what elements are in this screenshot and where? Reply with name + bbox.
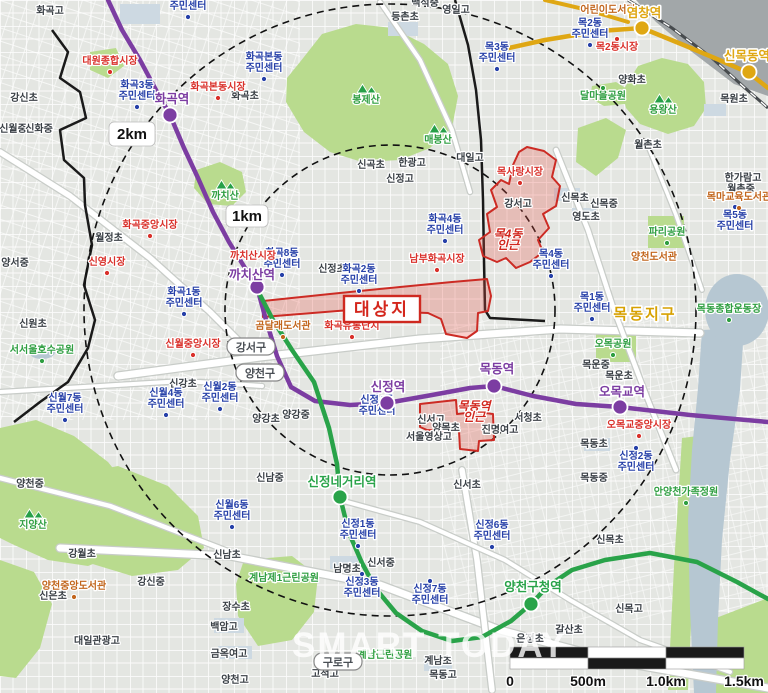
map-svg: 화곡고백석중등촌초영일고강신초신월중신화중화곡초월정초양서중신원초신정초신곡초한… <box>0 0 768 693</box>
poi-dot <box>359 571 364 576</box>
map-label: 진명여고 <box>482 423 519 436</box>
station-label: 신정네거리역 <box>307 474 376 489</box>
map-label: 강서고 <box>504 197 532 210</box>
station-marker <box>524 597 539 612</box>
poi-dot <box>217 406 222 411</box>
map-label: 계남근린공원 <box>357 648 412 661</box>
poi-dot <box>427 578 432 583</box>
poi-dot <box>185 14 190 19</box>
poi-dot <box>280 334 285 339</box>
poi-dot <box>589 316 594 321</box>
poi-dot <box>489 544 494 549</box>
map-label: 신목중 <box>590 197 618 210</box>
scale-bar-label: 1.0km <box>646 673 686 689</box>
map-label: 금옥여고 <box>211 647 248 660</box>
map-label: 화곡중앙시장 <box>122 218 178 231</box>
poi-dot <box>134 104 139 109</box>
map-label: 신월2동주민센터 <box>202 380 239 404</box>
poi-dot <box>229 524 234 529</box>
map-label: 신월4동주민센터 <box>148 386 185 410</box>
map-label: 신월중 <box>0 122 27 135</box>
map-label: 양천중 <box>16 477 44 490</box>
map-label: 영도초 <box>572 210 600 223</box>
scale-bar-segment <box>588 658 666 669</box>
poi-dot <box>434 267 439 272</box>
map-label: 양천고 <box>221 673 249 686</box>
map-label: 목운초 <box>605 369 633 382</box>
map-label: 화곡1동주민센터 <box>166 286 203 309</box>
station-marker <box>613 400 628 415</box>
map-label: 신남중 <box>256 471 284 484</box>
map-label: 오목교중앙시장 <box>607 418 672 431</box>
poi-dot <box>163 412 168 417</box>
map-label: 목사랑시장 <box>497 165 544 178</box>
map-label: 강신초 <box>10 91 38 104</box>
poi-dot <box>71 594 76 599</box>
map-label: 강신중 <box>137 575 165 588</box>
scale-bar-segment <box>510 647 588 658</box>
poi-dot <box>62 417 67 422</box>
station-marker <box>742 65 757 80</box>
map-label: 남명초 <box>333 562 361 575</box>
poi-dot <box>279 272 284 277</box>
map-label: 신곡초 <box>357 158 385 171</box>
map-label: 신월6동주민센터 <box>214 498 251 522</box>
station-label: 양천구청역 <box>504 579 562 594</box>
map-label: 신월중앙시장 <box>165 337 221 350</box>
poi-dot <box>261 76 266 81</box>
map-label: 서서울호수공원 <box>10 343 74 356</box>
poi-dot <box>610 352 615 357</box>
map-label: 화곡3동주민센터 <box>119 79 156 102</box>
map-label: 대일고 <box>456 151 484 164</box>
map-label: 화곡고 <box>36 5 64 17</box>
map-label: 양강초 <box>252 412 280 425</box>
map-label: 대원종합시장 <box>82 54 138 67</box>
poi-dot <box>614 36 619 41</box>
scale-bar-segment <box>510 658 588 669</box>
map-label: 신서초 <box>453 478 481 491</box>
district-label: 구로구 <box>323 656 353 669</box>
poi-dot <box>349 334 354 339</box>
poi-dot <box>633 445 638 450</box>
map-label: 신서중 <box>367 556 395 569</box>
map-label: 신월7동주민센터 <box>47 391 84 415</box>
scale-bar-label: 1.5km <box>724 673 764 689</box>
poi-dot <box>548 273 553 278</box>
scale-bar-label: 500m <box>570 673 606 689</box>
map-label: 목원초 <box>720 92 748 105</box>
poi-dot <box>190 352 195 357</box>
map-label: 안양천가족정원 <box>654 485 718 498</box>
station-label: 까치산역 <box>229 267 275 282</box>
map-label: 신목고 <box>615 602 643 615</box>
station-marker <box>333 490 348 505</box>
map-label: 파리공원 <box>649 225 686 238</box>
poi-dot <box>147 233 152 238</box>
poi-dot <box>736 205 741 210</box>
map-label: 양천도서관 <box>631 250 678 263</box>
ring-label-1km: 1km <box>232 208 262 225</box>
poi-dot <box>664 240 669 245</box>
scale-bar-segment <box>588 647 666 658</box>
map-label: 강월초 <box>68 547 96 560</box>
poi-dot <box>587 42 592 47</box>
map-label: 목동중 <box>580 472 608 484</box>
poi-dot <box>442 238 447 243</box>
scale-bar-label: 0 <box>506 673 514 689</box>
map-label: 갈산초 <box>555 623 583 636</box>
map-label: 까치산시장 <box>230 249 277 262</box>
poi-dot <box>683 500 688 505</box>
map-label: 양강중 <box>282 408 310 421</box>
map-label: 서울영상고 <box>406 430 452 443</box>
map-label: 화곡본동시장 <box>190 80 246 93</box>
map-label: 곰달래도서관 <box>255 319 311 332</box>
map-label: 양천중앙도서관 <box>42 579 107 592</box>
map-label: 신남초 <box>213 548 241 561</box>
map-label: 화곡본동주민센터 <box>246 51 283 74</box>
poi-dot <box>215 95 220 100</box>
map-label: 신정1동주민센터 <box>340 517 377 541</box>
poi-dot <box>636 433 641 438</box>
map-label: 목동고 <box>429 669 457 681</box>
map-label: 신정3동주민센터 <box>344 575 381 599</box>
map-label: 장수초 <box>222 600 250 613</box>
station-label: 신정역 <box>371 379 406 394</box>
poi-dot <box>356 288 361 293</box>
map-canvas[interactable]: 화곡고백석중등촌초영일고강신초신월중신화중화곡초월정초양서중신원초신정초신곡초한… <box>0 0 768 693</box>
map-label: 월정초 <box>95 231 123 244</box>
station-label: 염창역 <box>627 5 662 20</box>
map-label: 백암고 <box>210 620 238 633</box>
poi-dot <box>726 317 731 322</box>
map-label: 신목초 <box>561 191 589 204</box>
map-label: 화곡2동주민센터 <box>341 263 378 286</box>
map-label: 서청초 <box>514 411 542 424</box>
poi-dot <box>107 69 112 74</box>
target-site-label: 대상지 <box>354 300 410 319</box>
poi-dot <box>104 270 109 275</box>
poi-dot <box>517 180 522 185</box>
poi-dot <box>494 66 499 71</box>
map-label: 양화초 <box>618 73 646 86</box>
scale-bar-segment <box>666 658 744 669</box>
map-label: 목동종합운동장 <box>697 302 762 315</box>
map-label: 신정고 <box>386 172 414 185</box>
scale-bar-segment <box>666 647 744 658</box>
map-label: 지양산 <box>19 518 47 531</box>
map-label: 신화중 <box>25 122 53 135</box>
map-label: 까치산 <box>211 189 239 202</box>
station-marker <box>635 21 650 36</box>
building-block <box>704 104 726 116</box>
map-label: 남부화곡시장 <box>409 252 465 265</box>
poi-dot <box>181 311 186 316</box>
map-label: 한가람고 <box>725 171 762 184</box>
ring-label-2km: 2km <box>117 126 147 143</box>
district-label: 양천구 <box>245 366 275 380</box>
map-label: 목운중 <box>582 359 610 371</box>
map-label: 신정2동주민센터 <box>618 449 655 473</box>
map-label: 목마교육도서관 <box>707 190 768 203</box>
map-label: 용왕산 <box>649 103 677 116</box>
map-label: 은정초 <box>516 632 544 645</box>
map-label: 백석중 <box>411 0 439 9</box>
map-label: 신원초 <box>19 317 47 330</box>
station-label: 신목동역 <box>724 48 768 63</box>
zone-label: 목4동인근 <box>494 227 524 252</box>
map-label: 신정6동주민센터 <box>474 518 511 542</box>
district-label: 강서구 <box>236 340 266 354</box>
station-marker <box>163 108 178 123</box>
map-label: 오목공원 <box>595 337 632 350</box>
map-label: 주민센터 <box>170 0 207 12</box>
station-marker <box>487 379 502 394</box>
poi-dot <box>355 543 360 548</box>
station-marker <box>380 396 395 411</box>
map-label: 계남초 <box>424 654 452 667</box>
map-label: 화곡4동주민센터 <box>427 213 464 236</box>
map-label: 대일관광고 <box>74 634 120 647</box>
map-label: 영일고 <box>442 3 470 16</box>
map-label: 한광고 <box>398 157 426 169</box>
map-label: 목동초 <box>580 437 608 450</box>
map-label: 양서중 <box>1 256 29 269</box>
poi-dot <box>600 85 605 90</box>
poi-dot <box>39 358 44 363</box>
map-label: 월촌초 <box>634 138 662 151</box>
station-label: 목동역 <box>480 361 515 376</box>
building-block <box>120 4 160 24</box>
area-label-mokdong: 목동지구 <box>613 306 676 323</box>
map-label: 신정7동주민센터 <box>412 582 449 606</box>
map-label: 등촌초 <box>391 10 419 23</box>
station-label: 오목교역 <box>599 384 645 399</box>
map-label: 매봉산 <box>424 133 452 146</box>
map-label: 신영시장 <box>89 255 127 268</box>
map-label: 신목초 <box>596 533 624 546</box>
map-label: 봉제산 <box>352 93 380 106</box>
map-label: 계남제1근린공원 <box>249 571 319 584</box>
station-label: 화곡역 <box>155 91 190 106</box>
